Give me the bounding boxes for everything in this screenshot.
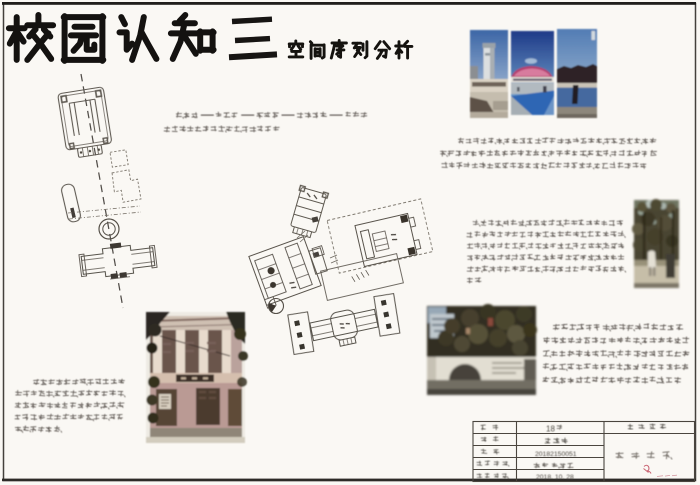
svg-text:18: 18: [546, 424, 555, 433]
svg-text:2018. 10. 28: 2018. 10. 28: [536, 474, 574, 481]
svg-text:20182150051: 20182150051: [535, 451, 577, 458]
